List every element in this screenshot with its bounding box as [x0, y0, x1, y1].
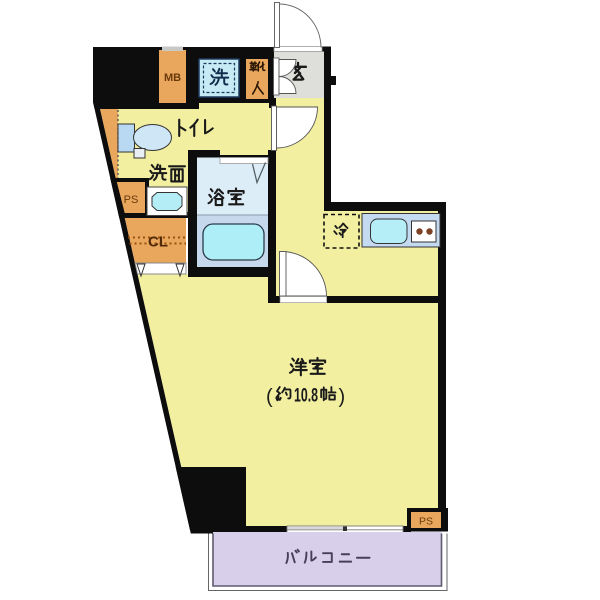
svg-text:PS: PS: [124, 194, 139, 206]
svg-text:(: (: [266, 386, 273, 408]
svg-text:): ): [339, 386, 346, 408]
svg-text:10.8: 10.8: [294, 386, 318, 407]
svg-text:MB: MB: [164, 72, 181, 84]
svg-text:CL: CL: [148, 234, 168, 251]
svg-text:PS: PS: [419, 516, 433, 528]
